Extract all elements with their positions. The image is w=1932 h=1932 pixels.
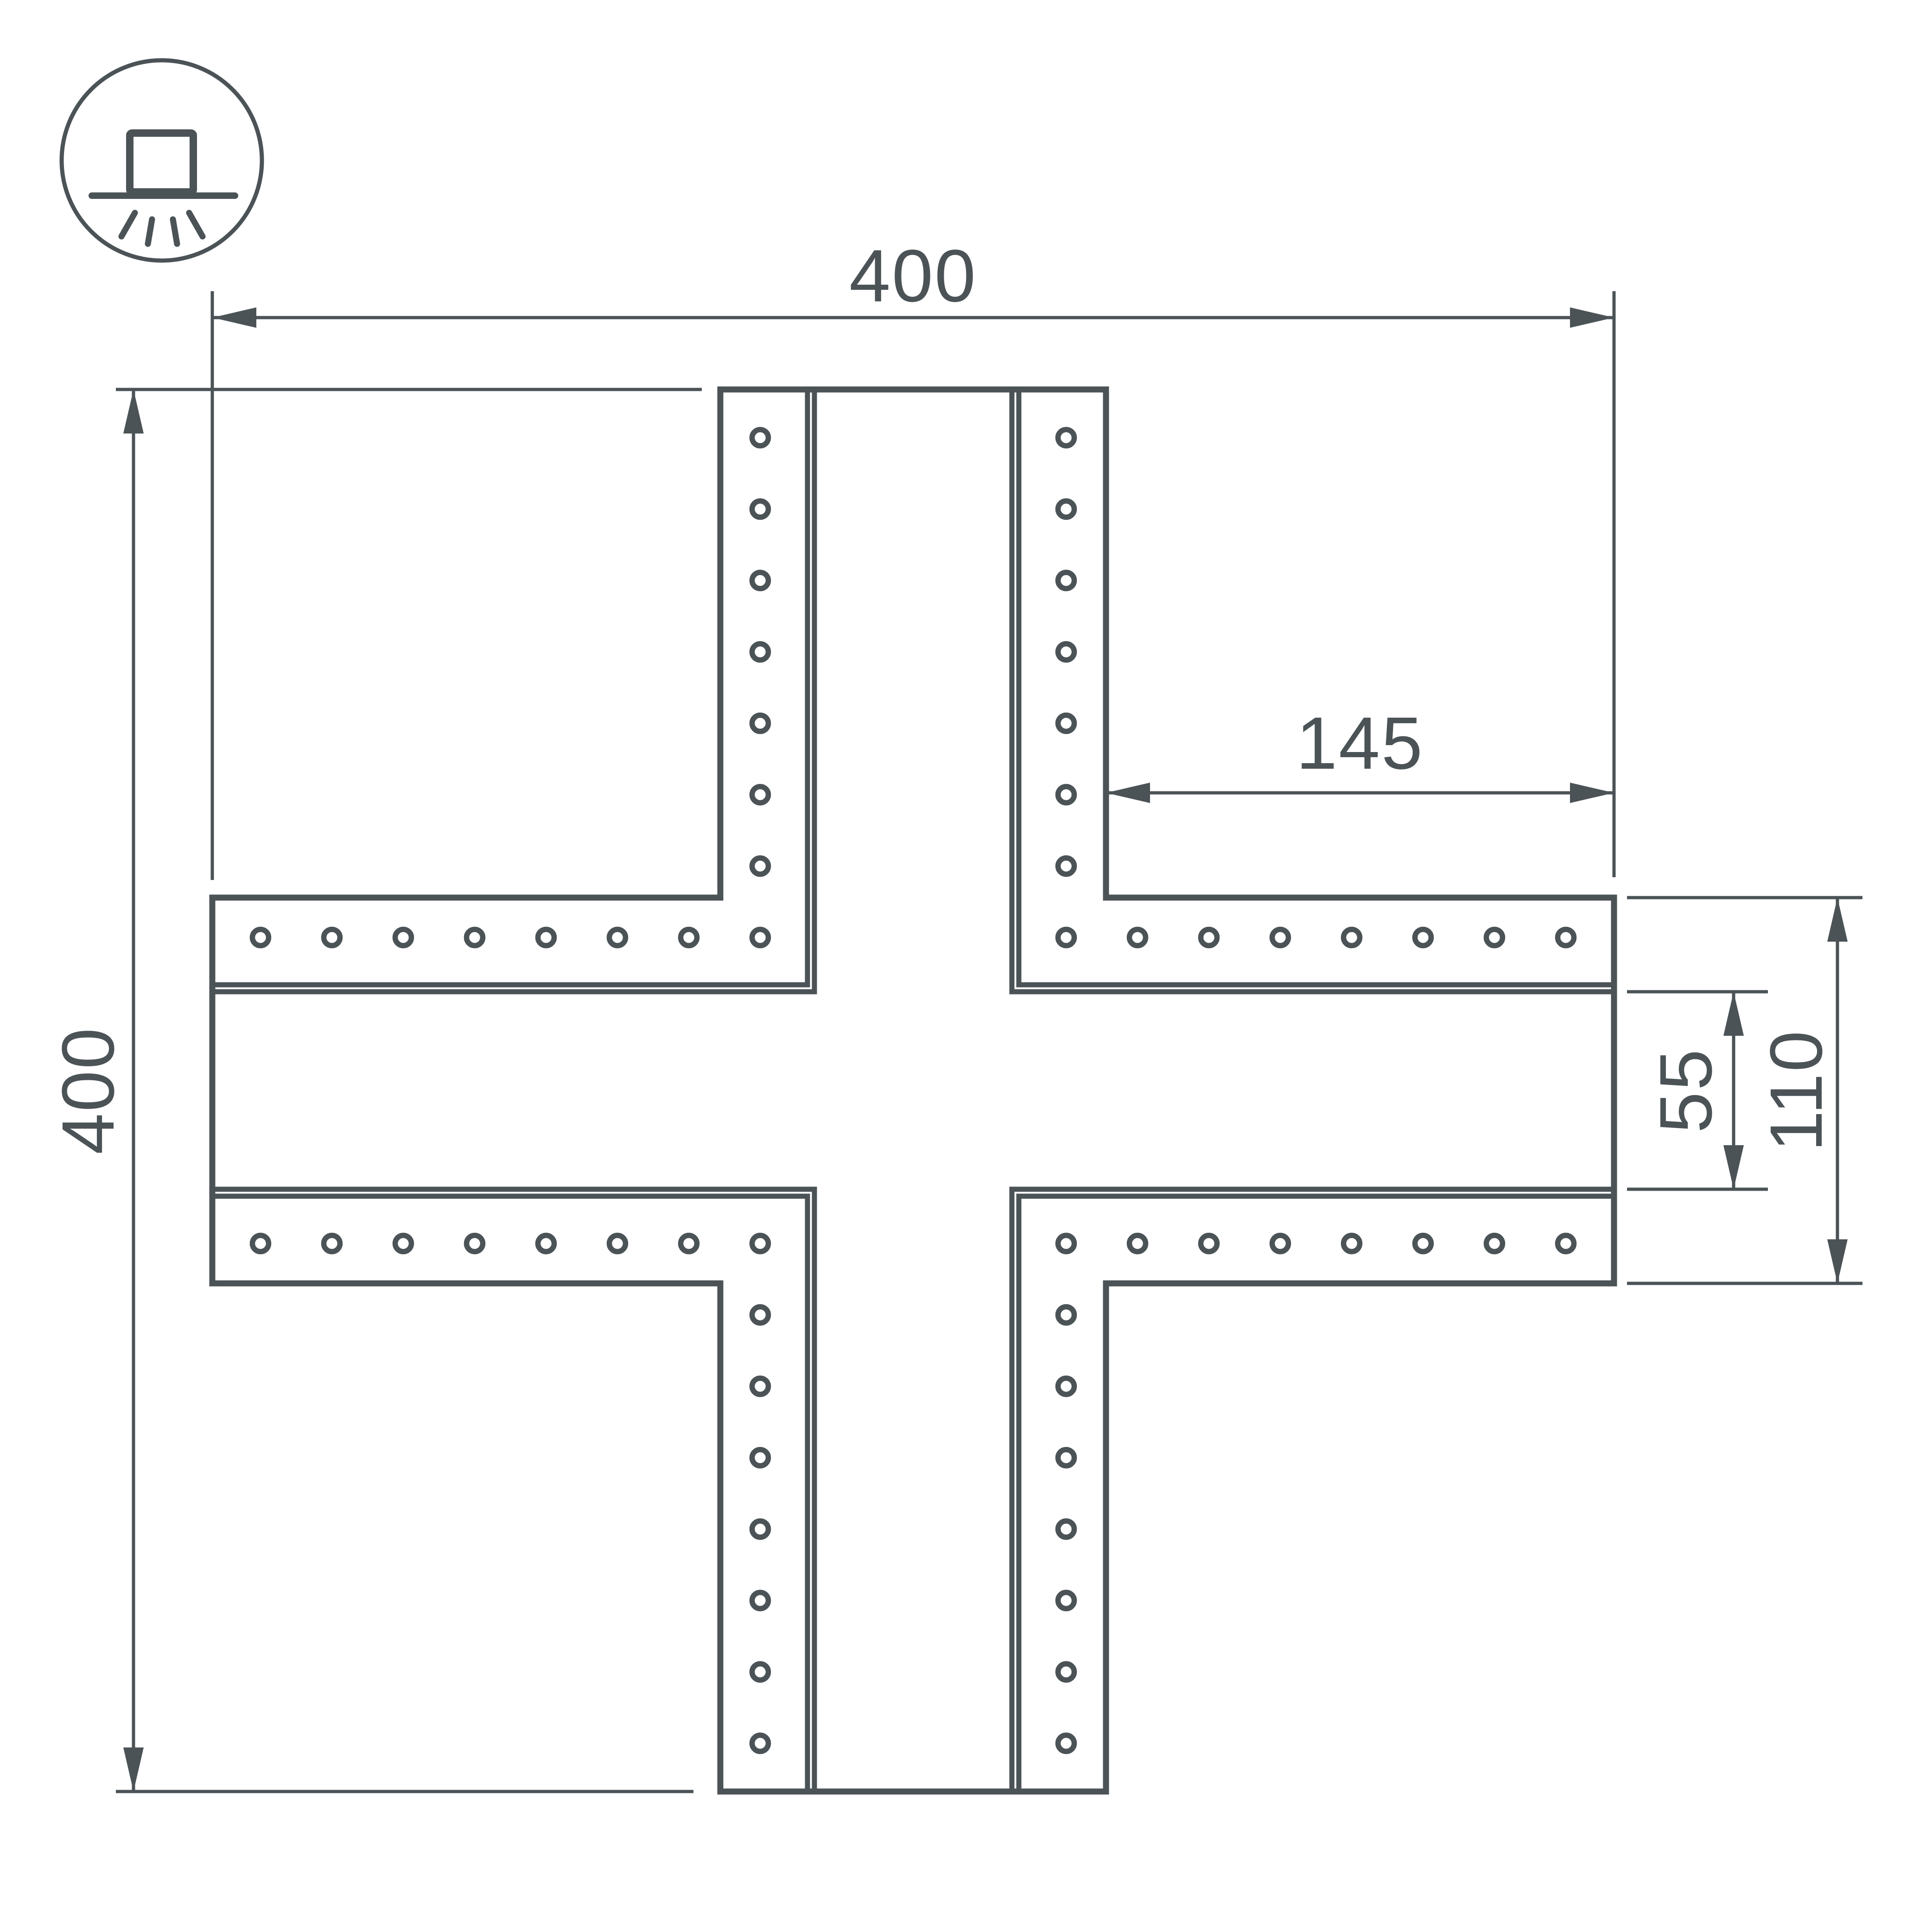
screw-hole: [1058, 1450, 1074, 1466]
screw-hole: [324, 930, 340, 946]
screw-hole: [1058, 930, 1074, 946]
screw-hole: [1058, 644, 1074, 660]
icon-light-ray: [148, 219, 152, 244]
screw-hole: [752, 858, 769, 874]
screw-hole: [395, 930, 412, 946]
screw-hole: [1058, 430, 1074, 446]
dimension-label-top-width: 400: [849, 234, 977, 317]
surface-mounted-luminaire-icon: [62, 60, 262, 261]
screw-hole: [752, 430, 769, 446]
part-channel-inner-edge: [212, 389, 1614, 1792]
screw-hole: [752, 1521, 769, 1537]
icon-light-ray: [121, 213, 135, 236]
screw-hole: [752, 715, 769, 732]
screw-hole: [253, 1236, 269, 1252]
icon-light-ray: [173, 219, 177, 244]
arrowhead-left: [1106, 783, 1150, 803]
screw-hole: [1058, 858, 1074, 874]
x-connector-drawing: 400 400 145 55 110: [0, 0, 1932, 1932]
screw-hole: [1272, 930, 1289, 946]
part-outer-outline: [212, 389, 1614, 1792]
screw-hole: [1487, 930, 1503, 946]
arrowhead-up: [1723, 992, 1744, 1036]
arrowhead-right: [1570, 783, 1614, 803]
screw-hole: [752, 787, 769, 803]
screw-hole: [1058, 1593, 1074, 1609]
screw-hole: [1558, 1236, 1574, 1252]
screw-hole: [752, 501, 769, 517]
screw-hole: [752, 1735, 769, 1752]
screw-hole: [467, 1236, 483, 1252]
screw-hole: [752, 1378, 769, 1395]
screw-hole: [752, 930, 769, 946]
screw-hole: [1058, 1378, 1074, 1395]
dimension-label-channel-width: 55: [1644, 1048, 1727, 1133]
screw-hole: [1058, 501, 1074, 517]
screw-hole: [752, 644, 769, 660]
screw-hole: [1415, 1236, 1431, 1252]
screw-hole: [467, 930, 483, 946]
screw-hole: [752, 1236, 769, 1252]
screw-hole: [395, 1236, 412, 1252]
screw-hole: [752, 1450, 769, 1466]
arrowhead-up: [123, 389, 144, 434]
icon-luminaire-box: [130, 133, 193, 192]
screw-hole: [681, 1236, 697, 1252]
screw-hole: [1058, 1521, 1074, 1537]
screw-hole: [538, 930, 554, 946]
screw-hole: [1487, 1236, 1503, 1252]
arrowhead-down: [1723, 1145, 1744, 1189]
icon-circle: [62, 60, 262, 261]
screw-hole: [1201, 930, 1217, 946]
screw-hole: [1272, 1236, 1289, 1252]
dimension-label-arm-length: 145: [1296, 701, 1424, 784]
dimension-label-arm-end-width: 110: [1754, 1029, 1837, 1152]
screw-hole: [324, 1236, 340, 1252]
dimension-label-left-height: 400: [46, 1027, 129, 1154]
screw-hole: [1058, 1307, 1074, 1323]
screw-hole: [610, 930, 626, 946]
screw-hole: [681, 930, 697, 946]
screw-hole: [538, 1236, 554, 1252]
cross-connector-part: [212, 389, 1614, 1792]
screw-hole: [253, 930, 269, 946]
dimension-channel-width: 55: [1627, 992, 1768, 1189]
screw-hole: [610, 1236, 626, 1252]
screw-hole: [752, 1307, 769, 1323]
screw-hole: [1344, 1236, 1360, 1252]
screw-hole: [1130, 930, 1146, 946]
arrowhead-down: [1827, 1239, 1848, 1283]
screw-hole: [752, 573, 769, 589]
screw-hole: [752, 1664, 769, 1680]
screw-hole: [1058, 573, 1074, 589]
screw-hole: [1058, 1236, 1074, 1252]
screw-hole: [1201, 1236, 1217, 1252]
arrowhead-left: [212, 307, 256, 328]
part-channel-outer-edge: [212, 389, 1614, 1792]
screw-hole: [1344, 930, 1360, 946]
arrowhead-right: [1570, 307, 1614, 328]
screw-hole: [752, 1593, 769, 1609]
screw-hole: [1058, 787, 1074, 803]
screw-hole: [1130, 1236, 1146, 1252]
technical-drawing-page: 400 400 145 55 110: [0, 0, 1932, 1932]
screw-holes: [253, 430, 1574, 1752]
icon-light-ray: [189, 213, 203, 236]
dimension-arm-length: 145: [1106, 701, 1614, 803]
arrowhead-down: [123, 1747, 144, 1792]
dimension-left-height: 400: [46, 389, 702, 1792]
screw-hole: [1058, 1735, 1074, 1752]
arrowhead-up: [1827, 898, 1848, 942]
screw-hole: [1058, 1664, 1074, 1680]
screw-hole: [1415, 930, 1431, 946]
screw-hole: [1558, 930, 1574, 946]
screw-hole: [1058, 715, 1074, 732]
